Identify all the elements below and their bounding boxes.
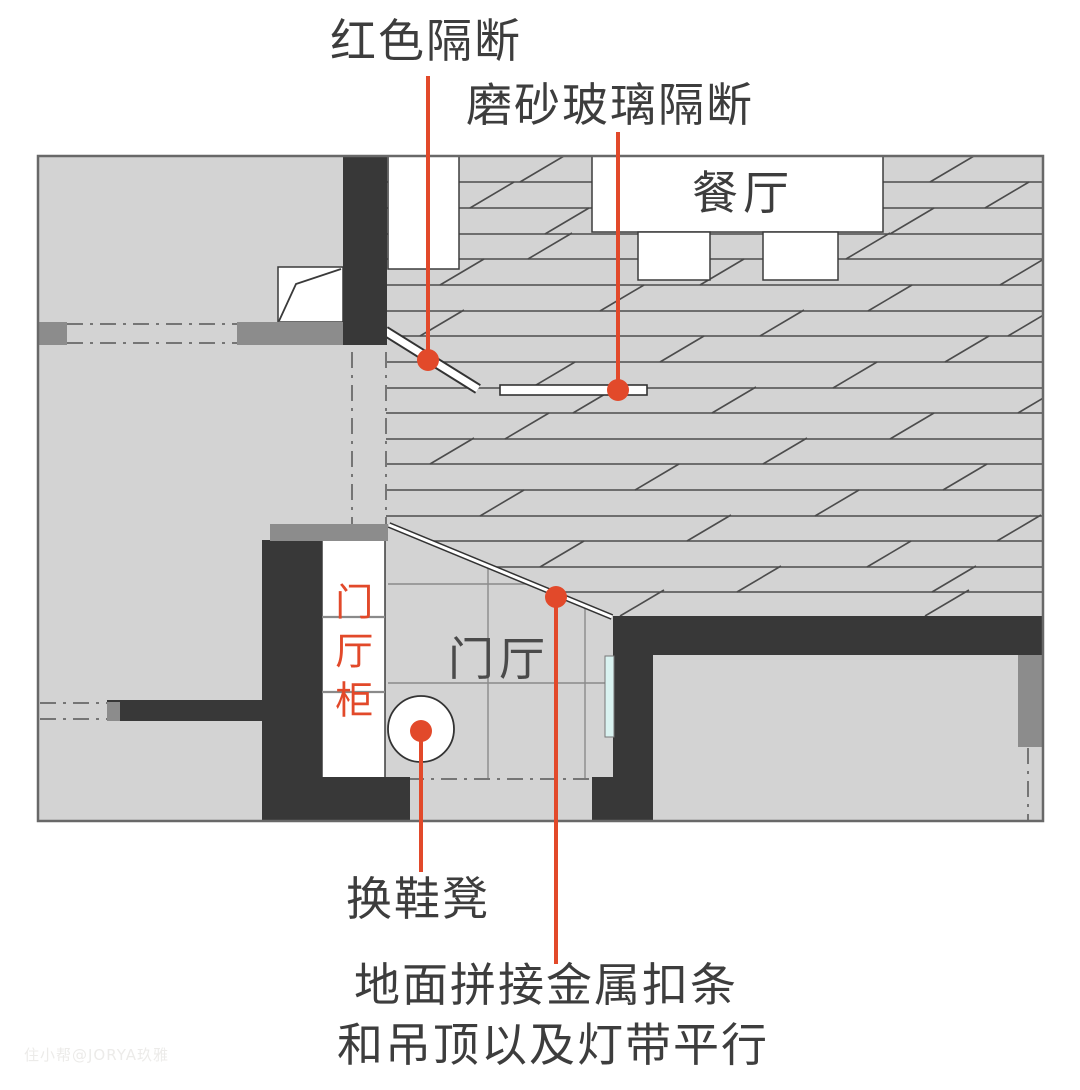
watermark: 住小帮@JORYA玖雅	[24, 1044, 169, 1065]
glass-door-panel	[605, 656, 614, 737]
label-metal-strip-line2: 和吊顶以及灯带平行	[337, 1020, 769, 1071]
label-metal-strip-line1: 地面拼接金属扣条	[354, 960, 738, 1011]
label-dining-room: 餐厅	[692, 168, 794, 219]
dining-chair-right	[763, 232, 838, 280]
leader-dot-frosted-glass	[607, 379, 629, 401]
label-frosted-glass-partition: 磨砂玻璃隔断	[466, 80, 754, 131]
folding-door-symbol	[278, 267, 343, 322]
label-foyer-cabinet: 门厅柜	[329, 582, 371, 729]
floor-plan-page: 红色隔断 磨砂玻璃隔断 餐厅 门厅 门厅柜 换鞋凳 地面拼接金属扣条 和吊顶以及…	[0, 0, 1080, 1090]
dining-chair-left	[638, 232, 710, 280]
leader-dot-shoe-stool	[410, 720, 432, 742]
label-shoe-stool: 换鞋凳	[346, 874, 490, 925]
label-red-partition: 红色隔断	[330, 16, 522, 67]
floor-plan-drawing	[0, 0, 1080, 1090]
tall-cabinet-top	[388, 156, 459, 269]
floor-base	[38, 156, 1043, 821]
leader-dot-red-partition	[417, 349, 439, 371]
label-foyer: 门厅	[448, 634, 550, 685]
leader-dot-metal-strip	[545, 586, 567, 608]
